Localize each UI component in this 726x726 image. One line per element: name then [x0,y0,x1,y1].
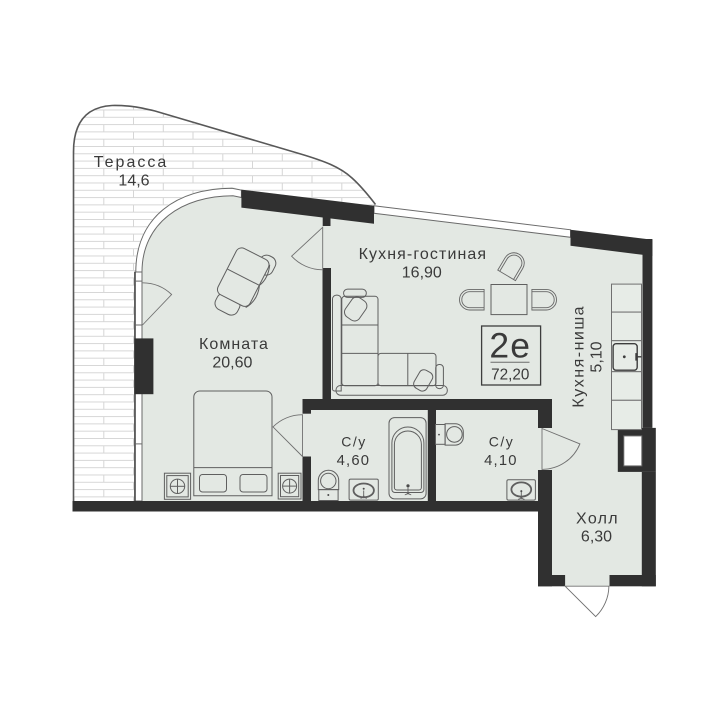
svg-text:6,30: 6,30 [581,529,612,546]
svg-text:72,20: 72,20 [491,366,529,383]
svg-text:20,60: 20,60 [212,355,252,372]
svg-text:2е: 2е [489,325,531,365]
svg-text:4,60: 4,60 [337,453,371,469]
svg-text:С/у: С/у [489,433,515,449]
svg-text:С/у: С/у [341,433,367,449]
svg-text:14,6: 14,6 [118,172,149,189]
svg-text:Холл: Холл [576,510,619,527]
svg-text:Кухня-ниша: Кухня-ниша [571,305,588,408]
svg-text:4,10: 4,10 [484,453,518,469]
svg-text:Терасса: Терасса [94,154,168,171]
svg-text:Кухня-гостиная: Кухня-гостиная [359,246,488,263]
svg-text:Комната: Комната [199,336,269,353]
svg-text:5,10: 5,10 [589,341,606,372]
svg-text:16,90: 16,90 [402,264,442,281]
